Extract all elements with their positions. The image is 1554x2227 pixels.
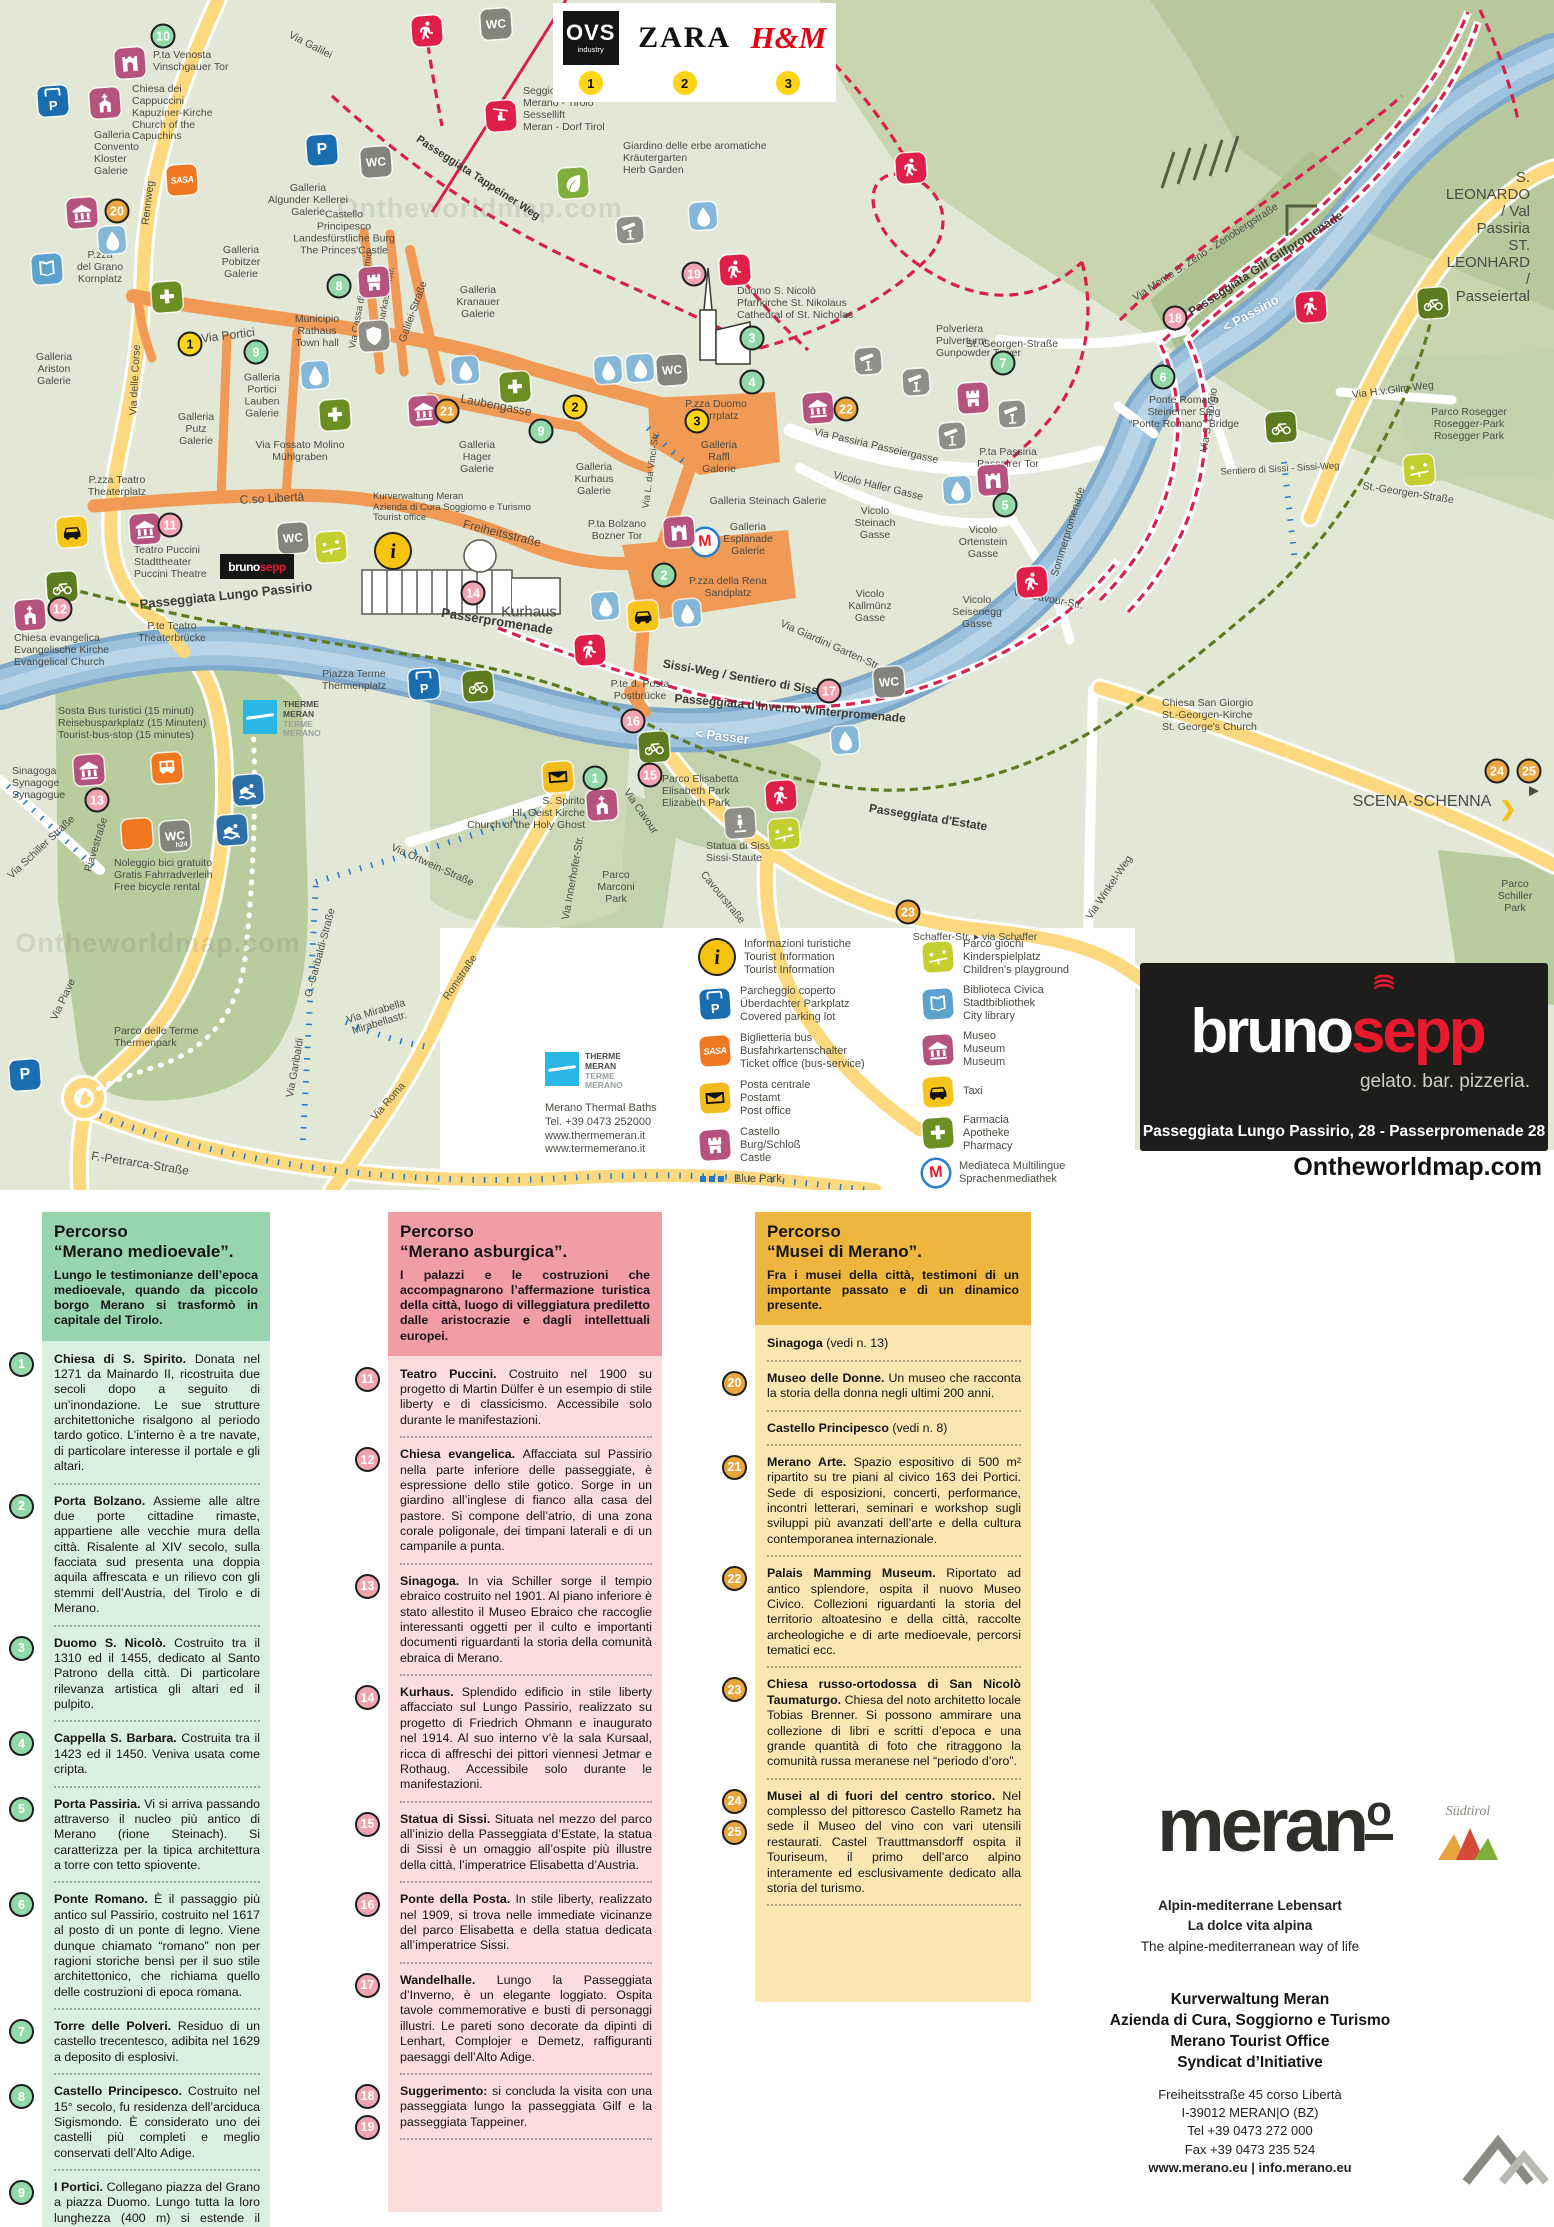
mail-icon	[699, 1082, 731, 1114]
map-label: Vicolo Ortenstein Gasse	[959, 525, 1007, 561]
route-item-text: Merano Arte. Spazio espositivo di 500 m²…	[767, 1455, 1021, 1547]
gate-icon	[114, 47, 146, 79]
map-label: Vicolo Kallmünz Gasse	[848, 589, 891, 625]
poi-number-badge: 9	[244, 340, 269, 365]
poi-number-badge: 4	[740, 370, 765, 395]
legend-entry: Posta centralePostamtPost office	[700, 1079, 905, 1118]
route-item-text: Cappella S. Barbara. Costruita tra il 14…	[54, 1731, 260, 1777]
route-item: 23Chiesa russo-ortodossa di San Nicolò T…	[755, 1668, 1031, 1779]
steam-icon: )))	[1372, 976, 1395, 990]
pharmacy-icon: ✚	[499, 371, 531, 403]
route-kicker: Percorso	[400, 1222, 650, 1242]
taxi-icon	[627, 600, 659, 632]
map-label: Parco Marconi Park	[597, 870, 634, 906]
route-item-text: Wandelhalle. Lungo la Passeggiata d’Inve…	[400, 1973, 652, 2065]
museum-icon	[73, 754, 105, 786]
therme-wave-icon	[545, 1052, 579, 1086]
thermal-baths-contact: Merano Thermal Baths Tel. +39 0473 25200…	[545, 1102, 657, 1157]
route-item-text: Musei al di fuori del centro storico. Ne…	[767, 1789, 1021, 1897]
drop-icon	[591, 592, 620, 621]
map-label: SCENA·SCHENNA	[1353, 793, 1492, 811]
legend-entry: iInformazioni turisticheTourist Informat…	[700, 938, 905, 977]
map-legend: iInformazioni turisticheTourist Informat…	[700, 938, 1128, 1186]
brunosepp-logo: brunosepp	[1140, 1001, 1534, 1063]
route-item-number: 18	[355, 2084, 380, 2109]
map-label: Galleria Putz Galerie	[178, 412, 214, 448]
taxi-icon	[922, 1076, 954, 1108]
route-intro: Lungo le testimonianze dell’epoca medioe…	[54, 1268, 258, 1329]
hiker-icon	[411, 15, 443, 47]
route-item: 17Wandelhalle. Lungo la Passeggiata d’In…	[388, 1964, 662, 2075]
route-kicker: Percorso	[767, 1222, 1019, 1242]
route-item: 9I Portici. Collegano piazza del Grano a…	[42, 2171, 270, 2227]
route-item-text: Castello Principesco (vedi n. 8)	[767, 1421, 1021, 1436]
museum-icon	[922, 1034, 954, 1066]
route-item: 2425Musei al di fuori del centro storico…	[755, 1780, 1031, 1907]
playground-icon	[768, 818, 800, 850]
map-label: Duomo S. Nicolò Pfarrkirche St. Nikolaus…	[737, 286, 853, 322]
church-icon	[586, 789, 618, 821]
map-label: Galleria Convento Kloster Galerie	[94, 130, 139, 177]
merano-tourist-map-poster: TIROLO DORF TIROLS. LEONARDO / Val Passi…	[0, 0, 1554, 2227]
map-label: ▶	[1529, 784, 1539, 799]
map-label: Galleria Hager Galerie	[459, 440, 495, 476]
camera-icon	[616, 216, 644, 244]
suedtirol-mountains-icon	[1436, 1822, 1500, 1862]
route-item-text: Statua di Sissi. Situata nel mezzo del p…	[400, 1812, 652, 1874]
route-item-number: 11	[355, 1367, 380, 1392]
site-credit: Ontheworldmap.com	[1135, 1153, 1548, 1182]
route-item: 12Chiesa evangelica. Affacciata sul Pass…	[388, 1438, 662, 1565]
map-label: Kurhaus	[501, 605, 557, 622]
legend-entry: Biblioteca CivicaStadtbibliothekCity lib…	[923, 984, 1128, 1023]
route-intro: I palazzi e le costruzioni che accompagn…	[400, 1268, 650, 1344]
map-label: Vicolo Steinach Gasse	[855, 506, 896, 542]
map-label: Galleria Pobitzer Galerie	[222, 245, 261, 281]
route-item-number: 4	[9, 1731, 34, 1756]
legend-entry-label: Blue Park	[734, 1173, 782, 1186]
wc24-icon: WCh24	[159, 820, 191, 852]
poi-number-badge: 8	[327, 274, 352, 299]
route-item-number: 3	[9, 1636, 34, 1661]
camera-icon	[938, 422, 966, 450]
ovs-logo: OVS industry	[563, 11, 619, 65]
map-label: S. LEONARDO / Val Passiria ST. LEONHARD …	[1446, 170, 1530, 306]
route-item-text: Teatro Puccini. Costruito nel 1900 su pr…	[400, 1367, 652, 1429]
legend-entry: ✚FarmaciaApothekePharmacy	[923, 1114, 1128, 1153]
route-item-number: 5	[9, 1797, 34, 1822]
p-icon: P	[9, 1059, 41, 1091]
poi-number-badge: 20	[105, 199, 130, 224]
hiker-icon	[895, 152, 927, 184]
route-item: 7Torre delle Polveri. Residuo di un cast…	[42, 2010, 270, 2075]
route-panel-asburgica: Percorso “Merano asburgica”. I palazzi e…	[388, 1212, 662, 2212]
route-item: Sinagoga (vedi n. 13)	[755, 1327, 1031, 1361]
route-item-number: 9	[9, 2180, 34, 2205]
castle-icon	[358, 266, 390, 298]
routes-section: Percorso “Merano medioevale”. Lungo le t…	[0, 1190, 1554, 2227]
legend-entry-label: FarmaciaApothekePharmacy	[963, 1114, 1013, 1153]
taxi-icon	[56, 516, 88, 548]
route-item-text: Porta Bolzano. Assieme alle altre due po…	[54, 1494, 260, 1617]
map-label: P.zza Teatro Theaterplatz	[88, 475, 146, 499]
drop-icon	[831, 726, 860, 755]
church-icon	[89, 87, 121, 119]
route-item-text: Kurhaus. Splendido edificio in stile lib…	[400, 1685, 652, 1793]
pharmacy-icon: ✚	[922, 1117, 954, 1149]
shop-zara: ZARA 2	[638, 11, 731, 95]
zara-logo: ZARA	[638, 11, 731, 65]
map-label: Ponte Romano Steinerner Steg “Ponte Roma…	[1129, 395, 1239, 431]
hiker-icon	[765, 780, 797, 812]
sasa-icon: SASA	[166, 164, 198, 196]
hm-logo: H&M	[750, 11, 826, 65]
legend-entry-label: Informazioni turisticheTourist Informati…	[744, 938, 851, 977]
map-label: Teatro Puccini Stadttheater Puccini Thea…	[134, 545, 207, 581]
route-item-number: 17	[355, 1973, 380, 1998]
route-item: 6Ponte Romano. È il passaggio più antico…	[42, 1883, 270, 2010]
med-icon: M	[922, 1159, 950, 1187]
wc-icon: WC	[480, 8, 512, 40]
route-item-number: 16	[355, 1892, 380, 1917]
poi-number-badge: 10	[151, 24, 176, 49]
sasa-icon: SASA	[699, 1035, 731, 1067]
tourist-office-contact: Freiheitsstraße 45 corso Libertà I-39012…	[1040, 2086, 1460, 2177]
route-item-text: Suggerimento: si concluda la visita con …	[400, 2084, 652, 2130]
bus-icon	[151, 752, 183, 784]
drop-icon	[673, 599, 702, 628]
poi-number-badge: 13	[85, 788, 110, 813]
library-icon	[31, 253, 63, 285]
legend-entry-label: Parcheggio copertoÜberdachter ParkplatzC…	[740, 985, 849, 1024]
city-map: TIROLO DORF TIROLS. LEONARDO / Val Passi…	[0, 0, 1554, 1190]
route-item-number: 8	[9, 2084, 34, 2109]
route-item: 22Palais Mamming Museum. Riportato ad an…	[755, 1557, 1031, 1668]
map-label: Galleria Raffl Galerie	[701, 440, 737, 476]
map-label: Chiesa San Giorgio St.-Georgen-Kirche St…	[1162, 698, 1257, 734]
suedtirol-logo: Südtirol	[1428, 1802, 1508, 1862]
map-label: P.te Teatro Theaterbrücke	[138, 621, 206, 645]
route-item-text: Castello Principesco. Costruito nel 15° …	[54, 2084, 260, 2161]
pc-icon: P	[408, 668, 440, 700]
route-item: 3Duomo S. Nicolò. Costruito tra il 1310 …	[42, 1627, 270, 1723]
route-item: 8Castello Principesco. Costruito nel 15°…	[42, 2075, 270, 2171]
route-item-number: 25	[722, 1820, 747, 1845]
legend-entry: MuseoMuseumMuseum	[923, 1030, 1128, 1069]
legend-entry: SASABiglietteria busBusfahrkartenschalte…	[700, 1032, 905, 1071]
poi-number-badge: 1	[583, 766, 608, 791]
museum-icon	[129, 513, 161, 545]
camera-icon	[902, 368, 930, 396]
camera-icon	[854, 347, 882, 375]
map-label: Chiesa dei Cappuccini Kapuziner-Kirche C…	[132, 84, 213, 143]
poi-number-badge: 22	[834, 397, 859, 422]
map-label: Galleria Kurhaus Galerie	[574, 462, 613, 498]
legend-entry: MMediateca MultilingueSprachenmediathek	[923, 1160, 1128, 1186]
shop-number-badge: 3	[776, 71, 800, 95]
shop-number-badge: 2	[673, 71, 697, 95]
route-item: 14Kurhaus. Splendido edificio in stile l…	[388, 1676, 662, 1803]
wc-icon: WC	[873, 666, 905, 698]
brunosepp-map-marker: brunosepp	[220, 554, 294, 579]
route-item: 16Ponte della Posta. In stile liberty, r…	[388, 1883, 662, 1964]
drop-icon	[451, 356, 480, 385]
route-item: 21Merano Arte. Spazio espositivo di 500 …	[755, 1446, 1031, 1557]
route-intro: Fra i musei della città, testimoni di un…	[767, 1268, 1019, 1313]
route-item-number: 19	[355, 2115, 380, 2140]
bluepark-icon	[700, 1176, 724, 1182]
poi-number-badge: 18	[1163, 306, 1188, 331]
therme-wave-icon	[243, 700, 277, 734]
map-label: Galleria Kranauer Galerie	[456, 285, 499, 321]
map-label: Via Fossato Molino Mühlgraben	[255, 440, 344, 464]
poi-number-badge: 2	[563, 395, 588, 420]
legend-entry-label: Biglietteria busBusfahrkartenschalterTic…	[740, 1032, 865, 1071]
legend-entry: CastelloBurg/SchloßCastle	[700, 1126, 905, 1165]
brand-taglines: Alpin-mediterrane Lebensart La dolce vit…	[1040, 1896, 1460, 1957]
watermark: Ontheworldmap.com	[15, 928, 301, 959]
route-item-text: Porta Passiria. Vi si arriva passando at…	[54, 1797, 260, 1874]
brunosepp-advert: ))) brunosepp gelato. bar. pizzeria. Pas…	[1140, 963, 1548, 1151]
poi-number-badge: 21	[435, 399, 460, 424]
route-item-number: 24	[722, 1789, 747, 1814]
route-item: 15Statua di Sissi. Situata nel mezzo del…	[388, 1803, 662, 1884]
shop-hm: H&M 3	[750, 11, 826, 95]
poi-number-badge: 11	[158, 513, 183, 538]
legend-entry: Parco giochiKinderspielplatzChildren's p…	[923, 938, 1128, 977]
route-item-text: Museo delle Donne. Un museo che racconta…	[767, 1371, 1021, 1402]
drop-icon	[98, 226, 127, 255]
route-item-text: Chiesa russo-ortodossa di San Nicolò Tau…	[767, 1677, 1021, 1769]
map-label: Galleria Ariston Galerie	[36, 352, 72, 388]
advert-tagline: gelato. bar. pizzeria.	[1360, 1071, 1530, 1093]
map-label: Municipio Rathaus Town hall	[295, 314, 339, 350]
map-label: Parco Rosegger Rosegger-Park Rosegger Pa…	[1431, 407, 1507, 443]
legend-entry-label: Biblioteca CivicaStadtbibliothekCity lib…	[963, 984, 1044, 1023]
map-label: P.ta Venosta Vinschgauer Tor	[153, 50, 229, 74]
map-label: Vicolo Seisenegg Gasse	[952, 595, 1002, 631]
shop-ovs: OVS industry 1	[563, 11, 619, 95]
bike-icon	[1265, 411, 1297, 443]
legend-entry: Blue Park	[700, 1173, 905, 1186]
roof-logo-icon	[1462, 2128, 1548, 2191]
map-label: Parco delle Terme Thermenpark	[114, 1026, 198, 1050]
route-item: 1Chiesa di S. Spirito. Donata nel 1271 d…	[42, 1343, 270, 1485]
merano-logo: merano	[1095, 1782, 1455, 1869]
drop-icon	[594, 356, 623, 385]
map-label: Galleria Esplanade Galerie	[723, 522, 773, 558]
map-label: Giardino delle erbe aromatiche Kräuterga…	[623, 141, 767, 177]
legend-entry-label: Taxi	[963, 1085, 983, 1098]
route-item: 13Sinagoga. In via Schiller sorge il tem…	[388, 1565, 662, 1676]
drop-icon	[943, 476, 972, 505]
route-item-number: 1	[9, 1352, 34, 1377]
poi-number-badge: 23	[896, 900, 921, 925]
route-item-number: 14	[355, 1685, 380, 1710]
route-item-text: Ponte Romano. È il passaggio più antico …	[54, 1892, 260, 2000]
legend-entry: PParcheggio copertoÜberdachter Parkplatz…	[700, 985, 905, 1024]
drop-icon	[626, 354, 655, 383]
museum-icon	[66, 197, 98, 229]
route-item: 4Cappella S. Barbara. Costruita tra il 1…	[42, 1722, 270, 1787]
bike-icon	[638, 731, 670, 763]
bike-icon	[462, 670, 494, 702]
route-item-number: 12	[355, 1447, 380, 1472]
wc-icon: WC	[360, 146, 392, 178]
route-item-text: Duomo S. Nicolò. Costruito tra il 1310 e…	[54, 1636, 260, 1713]
p-icon: P	[306, 134, 338, 166]
advert-address: Passeggiata Lungo Passirio, 28 - Passerp…	[1140, 1123, 1548, 1141]
map-label: Sinagoga Synagoge Synagogue	[12, 766, 65, 802]
wc-icon: WC	[277, 522, 309, 554]
map-label: Sosta Bus turistici (15 minuti) Reisebus…	[58, 706, 206, 742]
church-icon	[14, 599, 46, 631]
lift-icon	[485, 100, 517, 132]
map-label: P.zza della Rena Sandplatz	[689, 576, 767, 600]
route-title: “Merano asburgica”.	[400, 1242, 650, 1262]
legend-entry-label: Parco giochiKinderspielplatzChildren's p…	[963, 938, 1069, 977]
poi-number-badge: 12	[48, 597, 73, 622]
pharmacy-icon: ✚	[151, 281, 183, 313]
hiker-icon	[1016, 566, 1048, 598]
poi-number-badge: 15	[638, 763, 663, 788]
statue-icon	[724, 807, 756, 839]
poi-number-badge: 17	[817, 679, 842, 704]
poi-number-badge: 6	[1151, 365, 1176, 390]
poi-number-badge: 3	[740, 326, 765, 351]
map-label: ❯	[1500, 799, 1517, 822]
hiker-icon	[719, 254, 751, 286]
route-item-number: 7	[9, 2019, 34, 2044]
route-item-text: Palais Mamming Museum. Riportato ad anti…	[767, 1566, 1021, 1658]
legend-entry-label: CastelloBurg/SchloßCastle	[740, 1126, 801, 1165]
playground-icon	[315, 531, 347, 563]
leaf-icon	[557, 167, 589, 199]
playground-icon	[1403, 454, 1435, 486]
poi-number-badge: 25	[1517, 759, 1542, 784]
route-item-text: Sinagoga. In via Schiller sorge il tempi…	[400, 1574, 652, 1666]
map-label: Galleria Portici Lauben Galerie	[244, 372, 280, 419]
route-item-text: Sinagoga (vedi n. 13)	[767, 1336, 1021, 1351]
route-title: “Musei di Merano”.	[767, 1242, 1019, 1262]
map-label: Statua di Sissi Sissi-Staute	[706, 841, 773, 865]
poi-number-badge: 3	[685, 409, 710, 434]
pharmacy-icon: ✚	[319, 399, 351, 431]
poi-number-badge: 14	[461, 581, 486, 606]
route-item: 1819Suggerimento: si concluda la visita …	[388, 2075, 662, 2140]
pc-icon: P	[37, 85, 69, 117]
legend-entry: Taxi	[923, 1077, 1128, 1107]
route-item-text: Chiesa evangelica. Affacciata sul Passir…	[400, 1447, 652, 1555]
route-item-number: 6	[9, 1892, 34, 1917]
route-item-text: Torre delle Polveri. Residuo di un caste…	[54, 2019, 260, 2065]
shops-panel: OVS industry 1 ZARA 2 H&M 3	[553, 3, 836, 102]
route-kicker: Percorso	[54, 1222, 258, 1242]
wc-icon: WC	[656, 354, 688, 386]
route-panel-musei: Percorso “Musei di Merano”. Fra i musei …	[755, 1212, 1031, 2002]
pc-icon: P	[699, 988, 731, 1020]
map-label: Piazza Terme Thermenplatz	[322, 669, 386, 693]
route-item-number: 15	[355, 1812, 380, 1837]
info-icon: i	[699, 939, 735, 975]
poi-number-badge: 2	[652, 563, 677, 588]
castle-icon	[957, 382, 989, 414]
map-label: S. Spirito Hl. Geist Kirche Church of th…	[467, 796, 585, 832]
route-item: Castello Principesco (vedi n. 8)	[755, 1412, 1031, 1446]
castle-icon	[699, 1129, 731, 1161]
poi-number-badge: 24	[1485, 759, 1510, 784]
bikeo-icon	[121, 818, 153, 850]
swim-icon	[232, 774, 264, 806]
bike-icon	[1417, 287, 1449, 319]
map-label: Parco Schiller Park	[1498, 879, 1532, 915]
gate-icon	[663, 516, 695, 548]
therme-meran-logo: THERME MERAN TERME MERANO	[545, 1052, 623, 1091]
swim-icon	[216, 814, 248, 846]
camera-icon	[998, 400, 1026, 428]
tourist-office-block: Kurverwaltung Meran Azienda di Cura, Sog…	[1040, 1990, 1460, 2074]
legend-entry-label: Mediateca MultilingueSprachenmediathek	[959, 1160, 1065, 1186]
map-label: Galleria Steinach Galerie	[710, 496, 827, 508]
map-label: P.te d. Posta Postbrücke	[611, 679, 670, 703]
route-panel-medioevale: Percorso “Merano medioevale”. Lungo le t…	[42, 1212, 270, 2212]
drop-icon	[301, 361, 330, 390]
map-label: Noleggio bici gratuito Gratis Fahrradver…	[114, 858, 213, 894]
hiker-icon	[574, 634, 606, 666]
gate-icon	[977, 464, 1009, 496]
map-label: P.ta Bolzano Bozner Tor	[588, 519, 646, 543]
route-item-number: 23	[722, 1677, 747, 1702]
map-label: Parco Elisabetta Elisabeth Park Elizabet…	[662, 774, 738, 810]
route-item-number: 13	[355, 1574, 380, 1599]
drop-icon	[689, 202, 718, 231]
shop-number-badge: 1	[579, 71, 603, 95]
route-item-number: 22	[722, 1566, 747, 1591]
museum-icon	[802, 392, 834, 424]
poi-number-badge: 19	[682, 262, 707, 287]
map-label: Kurverwaltung Meran Azienda di Cura Sogg…	[373, 492, 531, 524]
route-item-text: I Portici. Collegano piazza del Grano a …	[54, 2180, 260, 2227]
route-item: 5Porta Passiria. Vi si arriva passando a…	[42, 1788, 270, 1884]
legend-entry-label: Posta centralePostamtPost office	[740, 1079, 810, 1118]
hiker-icon	[1295, 291, 1327, 323]
poi-number-badge: 5	[993, 493, 1018, 518]
route-item-text: Chiesa di S. Spirito. Donata nel 1271 da…	[54, 1352, 260, 1475]
route-title: “Merano medioevale”.	[54, 1242, 258, 1262]
poi-number-badge: 1	[178, 332, 203, 357]
map-label: Chiesa evangelica Evangelische Kirche Ev…	[14, 633, 109, 669]
map-label: P.zza del Grano Kornplatz	[77, 250, 123, 286]
playground-icon	[922, 941, 954, 973]
therme-meran-logo: THERME MERAN TERME MERANO	[243, 700, 321, 739]
route-item-number: 21	[722, 1455, 747, 1480]
route-item: 11Teatro Puccini. Costruito nel 1900 su …	[388, 1358, 662, 1439]
route-item-number: 2	[9, 1494, 34, 1519]
route-item: 2Porta Bolzano. Assieme alle altre due p…	[42, 1485, 270, 1627]
library-icon	[922, 988, 954, 1020]
route-item-text: Ponte della Posta. In stile liberty, rea…	[400, 1892, 652, 1954]
legend-entry-label: MuseoMuseumMuseum	[963, 1030, 1005, 1069]
poi-number-badge: 9	[529, 419, 554, 444]
shield-icon	[358, 320, 390, 352]
poi-number-badge: 7	[991, 351, 1016, 376]
mail-icon	[542, 761, 574, 793]
poi-number-badge: 16	[621, 709, 646, 734]
route-item: 20Museo delle Donne. Un museo che raccon…	[755, 1362, 1031, 1412]
route-item-number: 20	[722, 1371, 747, 1396]
